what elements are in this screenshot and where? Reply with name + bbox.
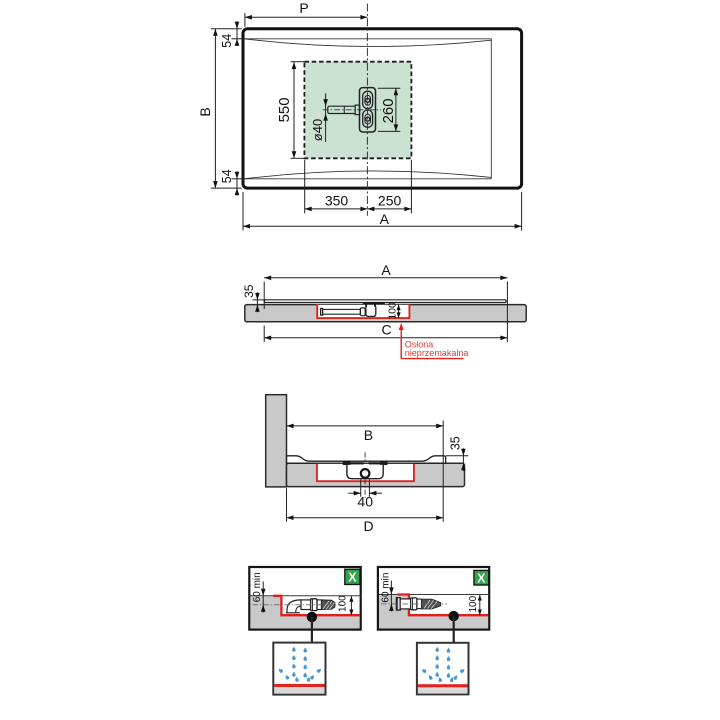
svg-text:550: 550 (276, 97, 293, 122)
svg-text:nieprzemakalna: nieprzemakalna (405, 348, 469, 358)
svg-text:X: X (477, 572, 486, 586)
svg-text:60 min: 60 min (381, 573, 392, 603)
svg-text:X: X (348, 571, 357, 585)
svg-text:250: 250 (378, 192, 402, 208)
svg-text:35: 35 (449, 436, 463, 450)
svg-text:100: 100 (468, 595, 479, 612)
svg-text:100: 100 (338, 595, 349, 612)
svg-text:40: 40 (357, 494, 373, 510)
svg-text:P: P (299, 0, 308, 16)
svg-text:35: 35 (242, 284, 256, 298)
svg-text:B: B (364, 427, 373, 443)
svg-text:B: B (197, 107, 213, 116)
svg-text:A: A (381, 262, 391, 278)
svg-text:54: 54 (220, 34, 234, 48)
svg-text:ø40: ø40 (310, 119, 325, 141)
svg-text:C: C (382, 321, 392, 337)
svg-text:54: 54 (220, 169, 234, 183)
svg-text:A: A (380, 211, 390, 227)
svg-text:D: D (364, 518, 374, 534)
svg-text:100: 100 (386, 302, 398, 320)
svg-text:60 min: 60 min (252, 572, 263, 602)
svg-text:350: 350 (325, 192, 349, 208)
svg-text:260: 260 (380, 98, 397, 123)
